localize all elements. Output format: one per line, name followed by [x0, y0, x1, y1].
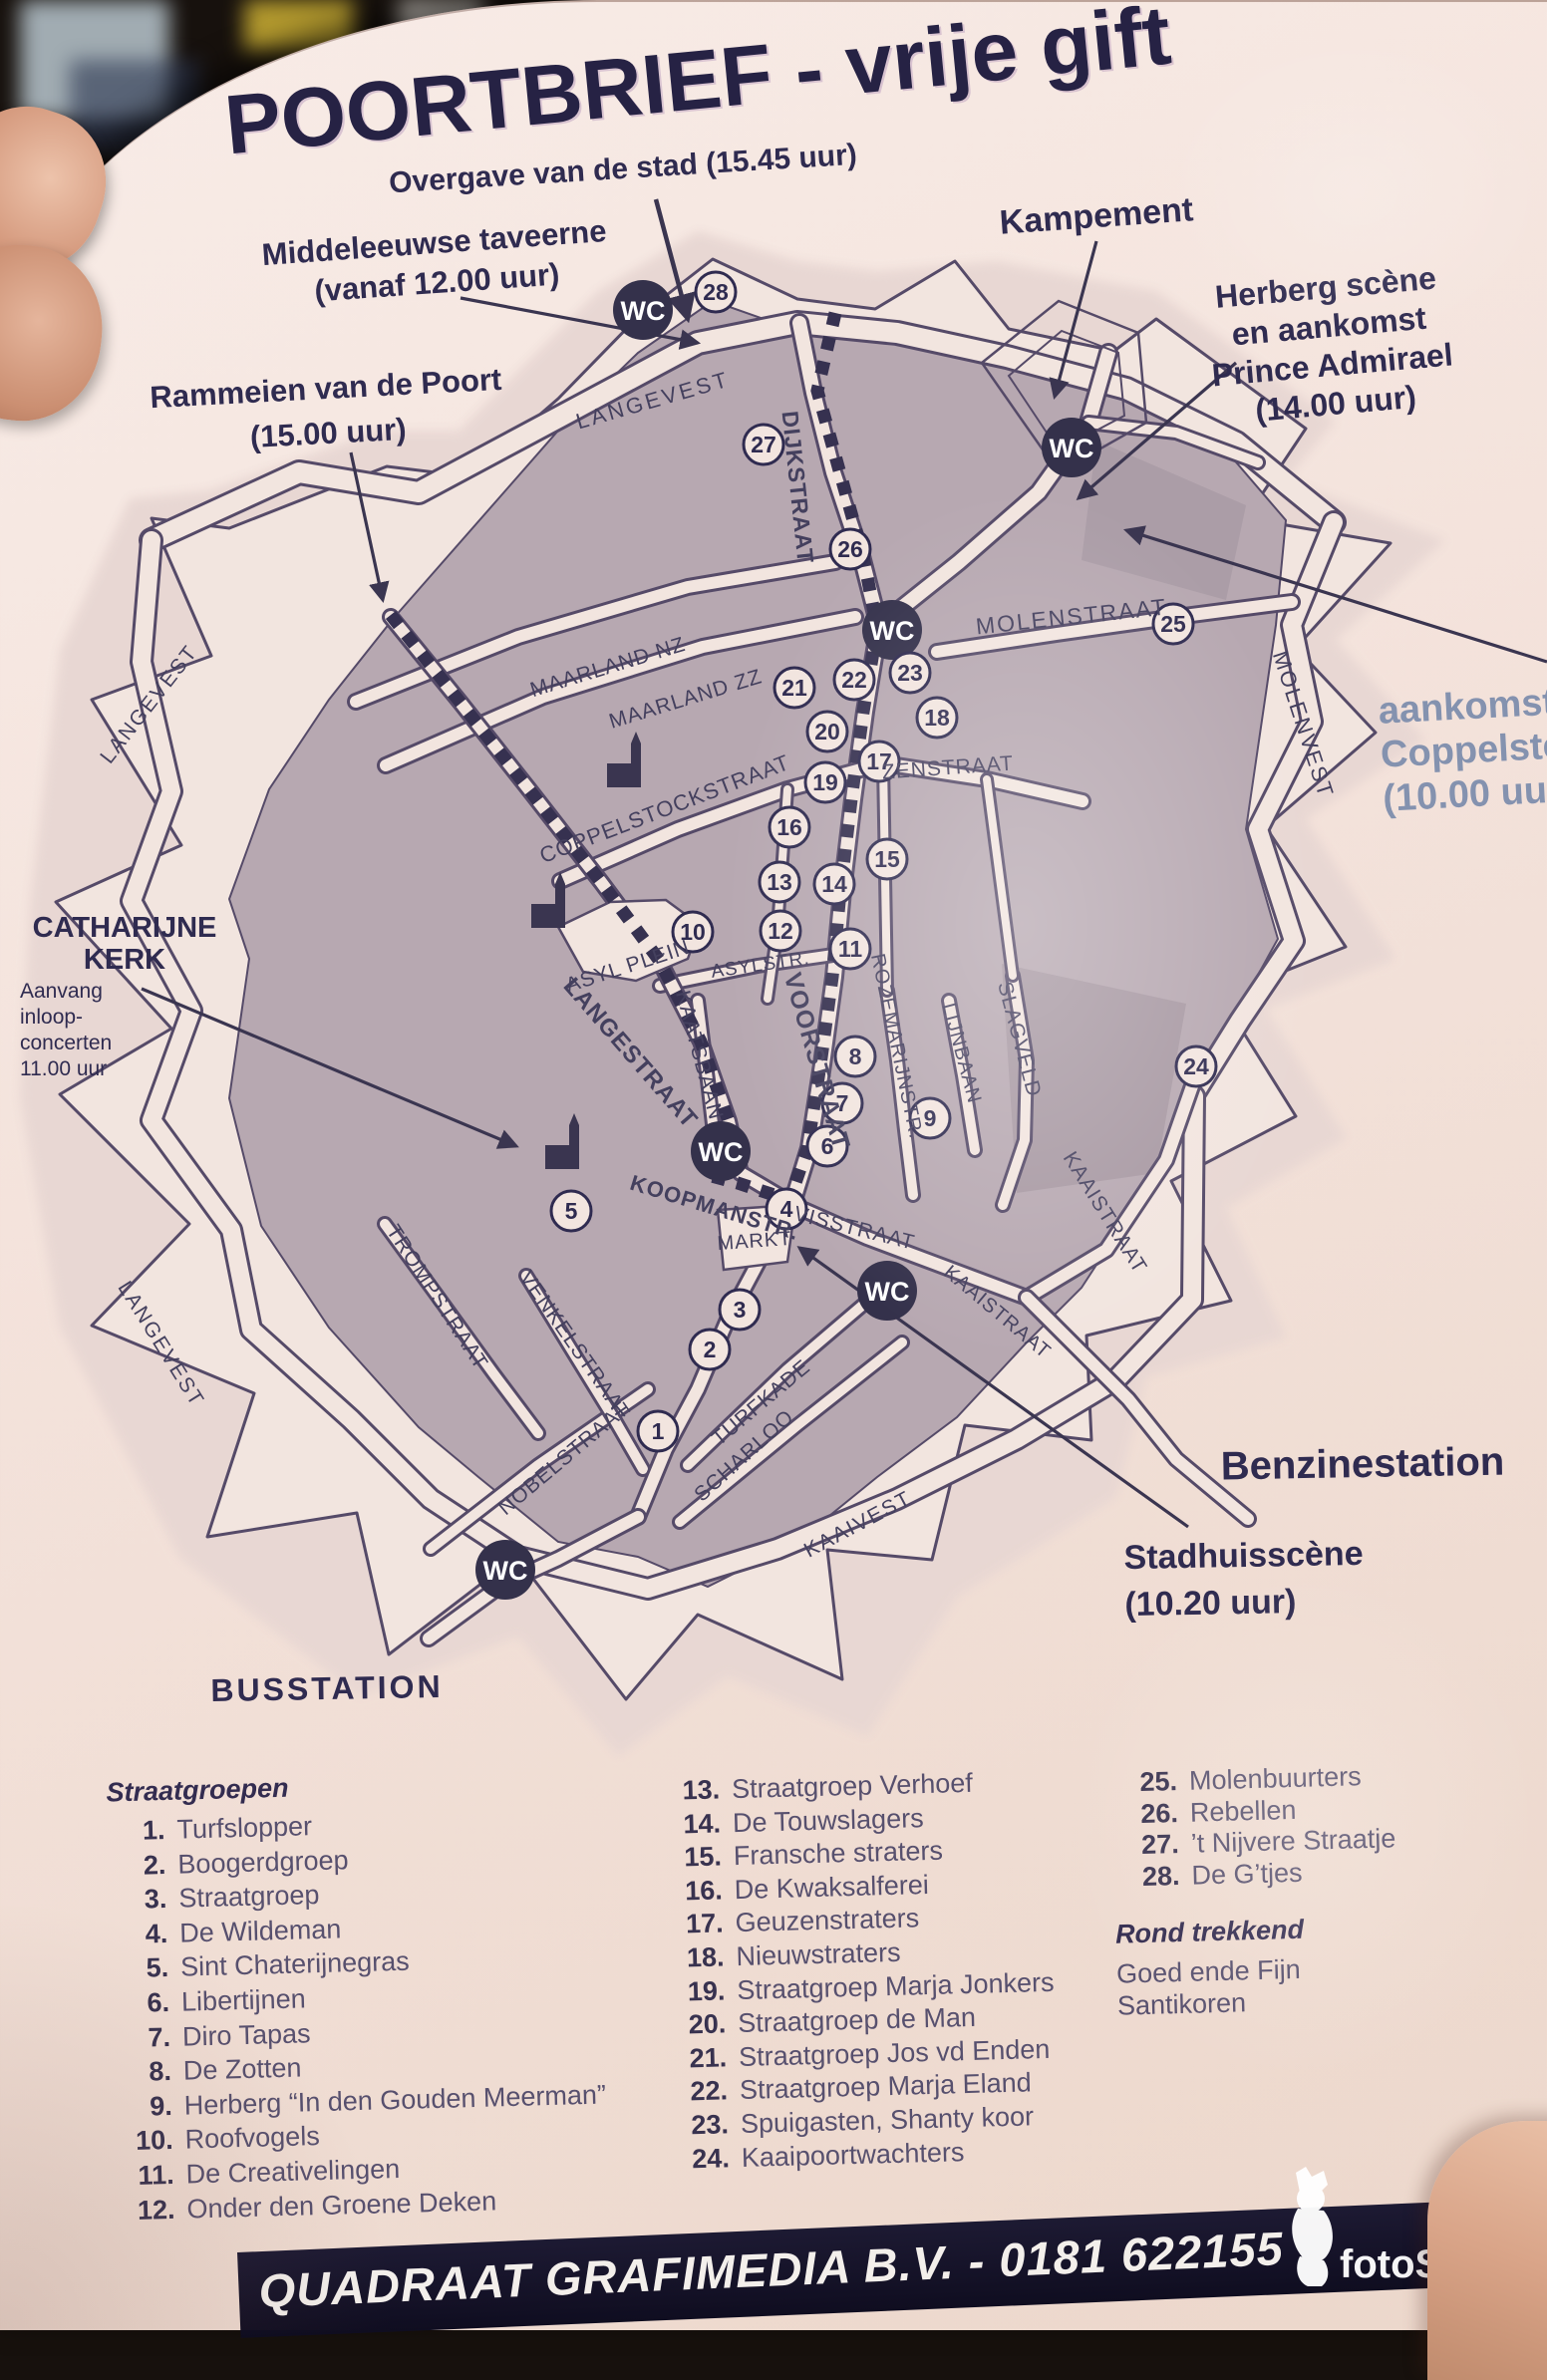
map-number-marker-8: 8: [835, 1037, 875, 1076]
map-number-marker-3: 3: [720, 1290, 760, 1330]
callout-catharijne-info: Aanvanginloop-concerten11.00 uur: [20, 979, 112, 1082]
legend-item-label: Straatgroep Marja Eland: [740, 2068, 1032, 2107]
legend-item-label: De Kwaksalferei: [734, 1870, 929, 1906]
svg-text:2: 2: [704, 1337, 717, 1362]
svg-text:WC: WC: [865, 1277, 910, 1307]
map-number-marker-18: 18: [917, 698, 957, 738]
legend-rond-header: Rond trekkend: [1115, 1913, 1398, 1950]
legend-item-number: 6.: [112, 1987, 182, 2020]
map-number-marker-26: 26: [830, 529, 870, 569]
legend-item-number: 18.: [652, 1941, 737, 1974]
legend-item-label: De Zotten: [182, 2053, 301, 2087]
svg-text:13: 13: [767, 869, 792, 895]
svg-text:20: 20: [814, 719, 840, 744]
legend-item: 28.De G’tjes: [1113, 1855, 1396, 1894]
svg-text:12: 12: [768, 918, 793, 944]
svg-text:16: 16: [776, 814, 802, 840]
svg-text:27: 27: [751, 432, 776, 457]
svg-text:8: 8: [849, 1043, 862, 1069]
legend-item-label: Straatgroep: [178, 1880, 320, 1915]
legend-column-3: 25.Molenbuurters26.Rebellen27.’t Nijvere…: [1111, 1760, 1400, 2022]
map-number-marker-2: 2: [690, 1330, 730, 1369]
legend-item-number: 4.: [110, 1918, 180, 1950]
legend-item-label: Rebellen: [1190, 1795, 1297, 1829]
legend-item-number: 8.: [114, 2056, 184, 2089]
svg-text:11: 11: [838, 936, 863, 962]
legend-item-number: 20.: [654, 2008, 739, 2041]
legend-item-label: Straatgroep de Man: [738, 2002, 976, 2039]
photo-scene: WCWCWCWCWCWC 123456789101112131415161718…: [0, 0, 1547, 2328]
svg-text:21: 21: [781, 675, 807, 701]
legend-item-number: 16.: [650, 1875, 735, 1908]
legend-item-label: Spuigasten, Shanty koor: [741, 2101, 1035, 2140]
map-number-marker-16: 16: [770, 807, 809, 847]
map-number-marker-23: 23: [890, 653, 930, 693]
legend-item-number: 17.: [651, 1908, 736, 1940]
legend-item-number: 25.: [1111, 1766, 1190, 1799]
legend-item-number: 1.: [107, 1815, 177, 1848]
wc-marker: WC: [691, 1121, 751, 1181]
wc-marker: WC: [857, 1261, 917, 1321]
legend-item-label: Boogerdgroep: [177, 1845, 349, 1880]
legend-item-label: Diro Tapas: [182, 2018, 311, 2052]
svg-text:19: 19: [812, 769, 838, 795]
map-number-marker-11: 11: [830, 929, 870, 969]
legend-column-2: 13.Straatgroep Verhoef14.De Touwslagers1…: [648, 1766, 1060, 2179]
legend-item-number: 5.: [111, 1952, 181, 1985]
svg-text:WC: WC: [870, 616, 915, 646]
legend-item-number: 21.: [655, 2042, 740, 2075]
svg-text:5: 5: [565, 1198, 578, 1224]
legend-item-number: 13.: [648, 1774, 733, 1807]
legend-item-number: 12.: [117, 2194, 187, 2227]
legend-item-label: Sint Chaterijnegras: [180, 1946, 410, 1983]
map-number-marker-15: 15: [867, 839, 907, 879]
legend-item-number: 10.: [115, 2125, 185, 2158]
legend-item-label: Nieuwstraters: [736, 1937, 901, 1972]
svg-text:24: 24: [1183, 1053, 1209, 1079]
callout-stadhuisscene: Stadhuisscène(10.20 uur): [1123, 1531, 1365, 1629]
map-number-marker-19: 19: [805, 762, 845, 802]
map-number-marker-20: 20: [807, 712, 847, 751]
svg-text:WC: WC: [621, 296, 666, 326]
svg-text:9: 9: [924, 1105, 937, 1131]
legend-column-1: Straatgroepen 1.Turfslopper2.Boogerdgroe…: [106, 1765, 609, 2231]
watermark-logo-icon: [1278, 2165, 1348, 2304]
legend-item-label: Molenbuurters: [1189, 1761, 1362, 1797]
map-number-marker-12: 12: [761, 911, 800, 951]
legend-item-number: 9.: [114, 2090, 184, 2123]
legend-item-number: 15.: [650, 1841, 735, 1874]
svg-text:WC: WC: [483, 1556, 528, 1586]
wc-marker: WC: [862, 600, 922, 660]
svg-text:18: 18: [924, 705, 950, 731]
svg-text:15: 15: [874, 846, 900, 872]
map-number-marker-21: 21: [774, 668, 814, 708]
svg-text:14: 14: [821, 871, 847, 897]
map-number-marker-1: 1: [638, 1411, 678, 1451]
legend-item-label: ’t Nijvere Straatje: [1190, 1823, 1395, 1859]
map-number-marker-5: 5: [551, 1191, 591, 1231]
callout-benzinestation: Benzinestation: [1044, 1433, 1547, 1494]
callout-aankomst-coppelstock: aankomstCoppelste(10.00 uu: [1378, 680, 1547, 820]
legend-item-number: 11.: [116, 2160, 186, 2193]
legend-item-label: Kaaipoortwachters: [741, 2137, 964, 2174]
legend-item-label: Libertijnen: [181, 1983, 306, 2017]
legend-item-number: 22.: [656, 2075, 741, 2108]
legend-item-label: Roofvogels: [184, 2121, 320, 2156]
legend-item-label: De G’tjes: [1191, 1858, 1303, 1892]
map-paper: WCWCWCWCWCWC 123456789101112131415161718…: [0, 0, 1547, 2330]
legend-item-number: 26.: [1112, 1797, 1191, 1830]
svg-text:26: 26: [837, 536, 863, 562]
legend-item-number: 3.: [109, 1884, 179, 1917]
svg-text:22: 22: [841, 667, 867, 693]
legend-item-label: De Wildeman: [179, 1914, 342, 1948]
legend-item-label: Turfslopper: [176, 1811, 312, 1846]
map-number-marker-24: 24: [1176, 1046, 1216, 1086]
legend-item-number: 27.: [1112, 1829, 1191, 1862]
svg-text:23: 23: [897, 660, 923, 686]
svg-text:3: 3: [734, 1297, 747, 1323]
legend-item-label: De Creativelingen: [185, 2154, 400, 2191]
legend-item-number: 28.: [1113, 1860, 1192, 1893]
svg-text:1: 1: [652, 1418, 665, 1444]
legend-item-number: 14.: [649, 1808, 734, 1841]
legend-item-label: Fransche straters: [734, 1836, 944, 1872]
legend-item-number: 24.: [657, 2143, 742, 2176]
legend-item-label: De Touwslagers: [733, 1803, 924, 1839]
legend-item-number: 19.: [653, 1975, 738, 2008]
legend-item-label: Geuzenstraters: [735, 1904, 919, 1939]
legend-item-number: 2.: [108, 1849, 178, 1882]
map-number-marker-14: 14: [814, 864, 854, 904]
map-number-marker-22: 22: [834, 660, 874, 700]
svg-text:WC: WC: [699, 1137, 744, 1167]
map-number-marker-13: 13: [760, 862, 799, 902]
legend-item-label: Straatgroep Verhoef: [732, 1768, 973, 1805]
wc-marker: WC: [475, 1540, 535, 1600]
callout-catharijne-kerk: CATHARIJNEKERK: [0, 912, 444, 976]
legend-item-number: 7.: [113, 2021, 183, 2054]
legend-item-number: 23.: [657, 2109, 742, 2142]
